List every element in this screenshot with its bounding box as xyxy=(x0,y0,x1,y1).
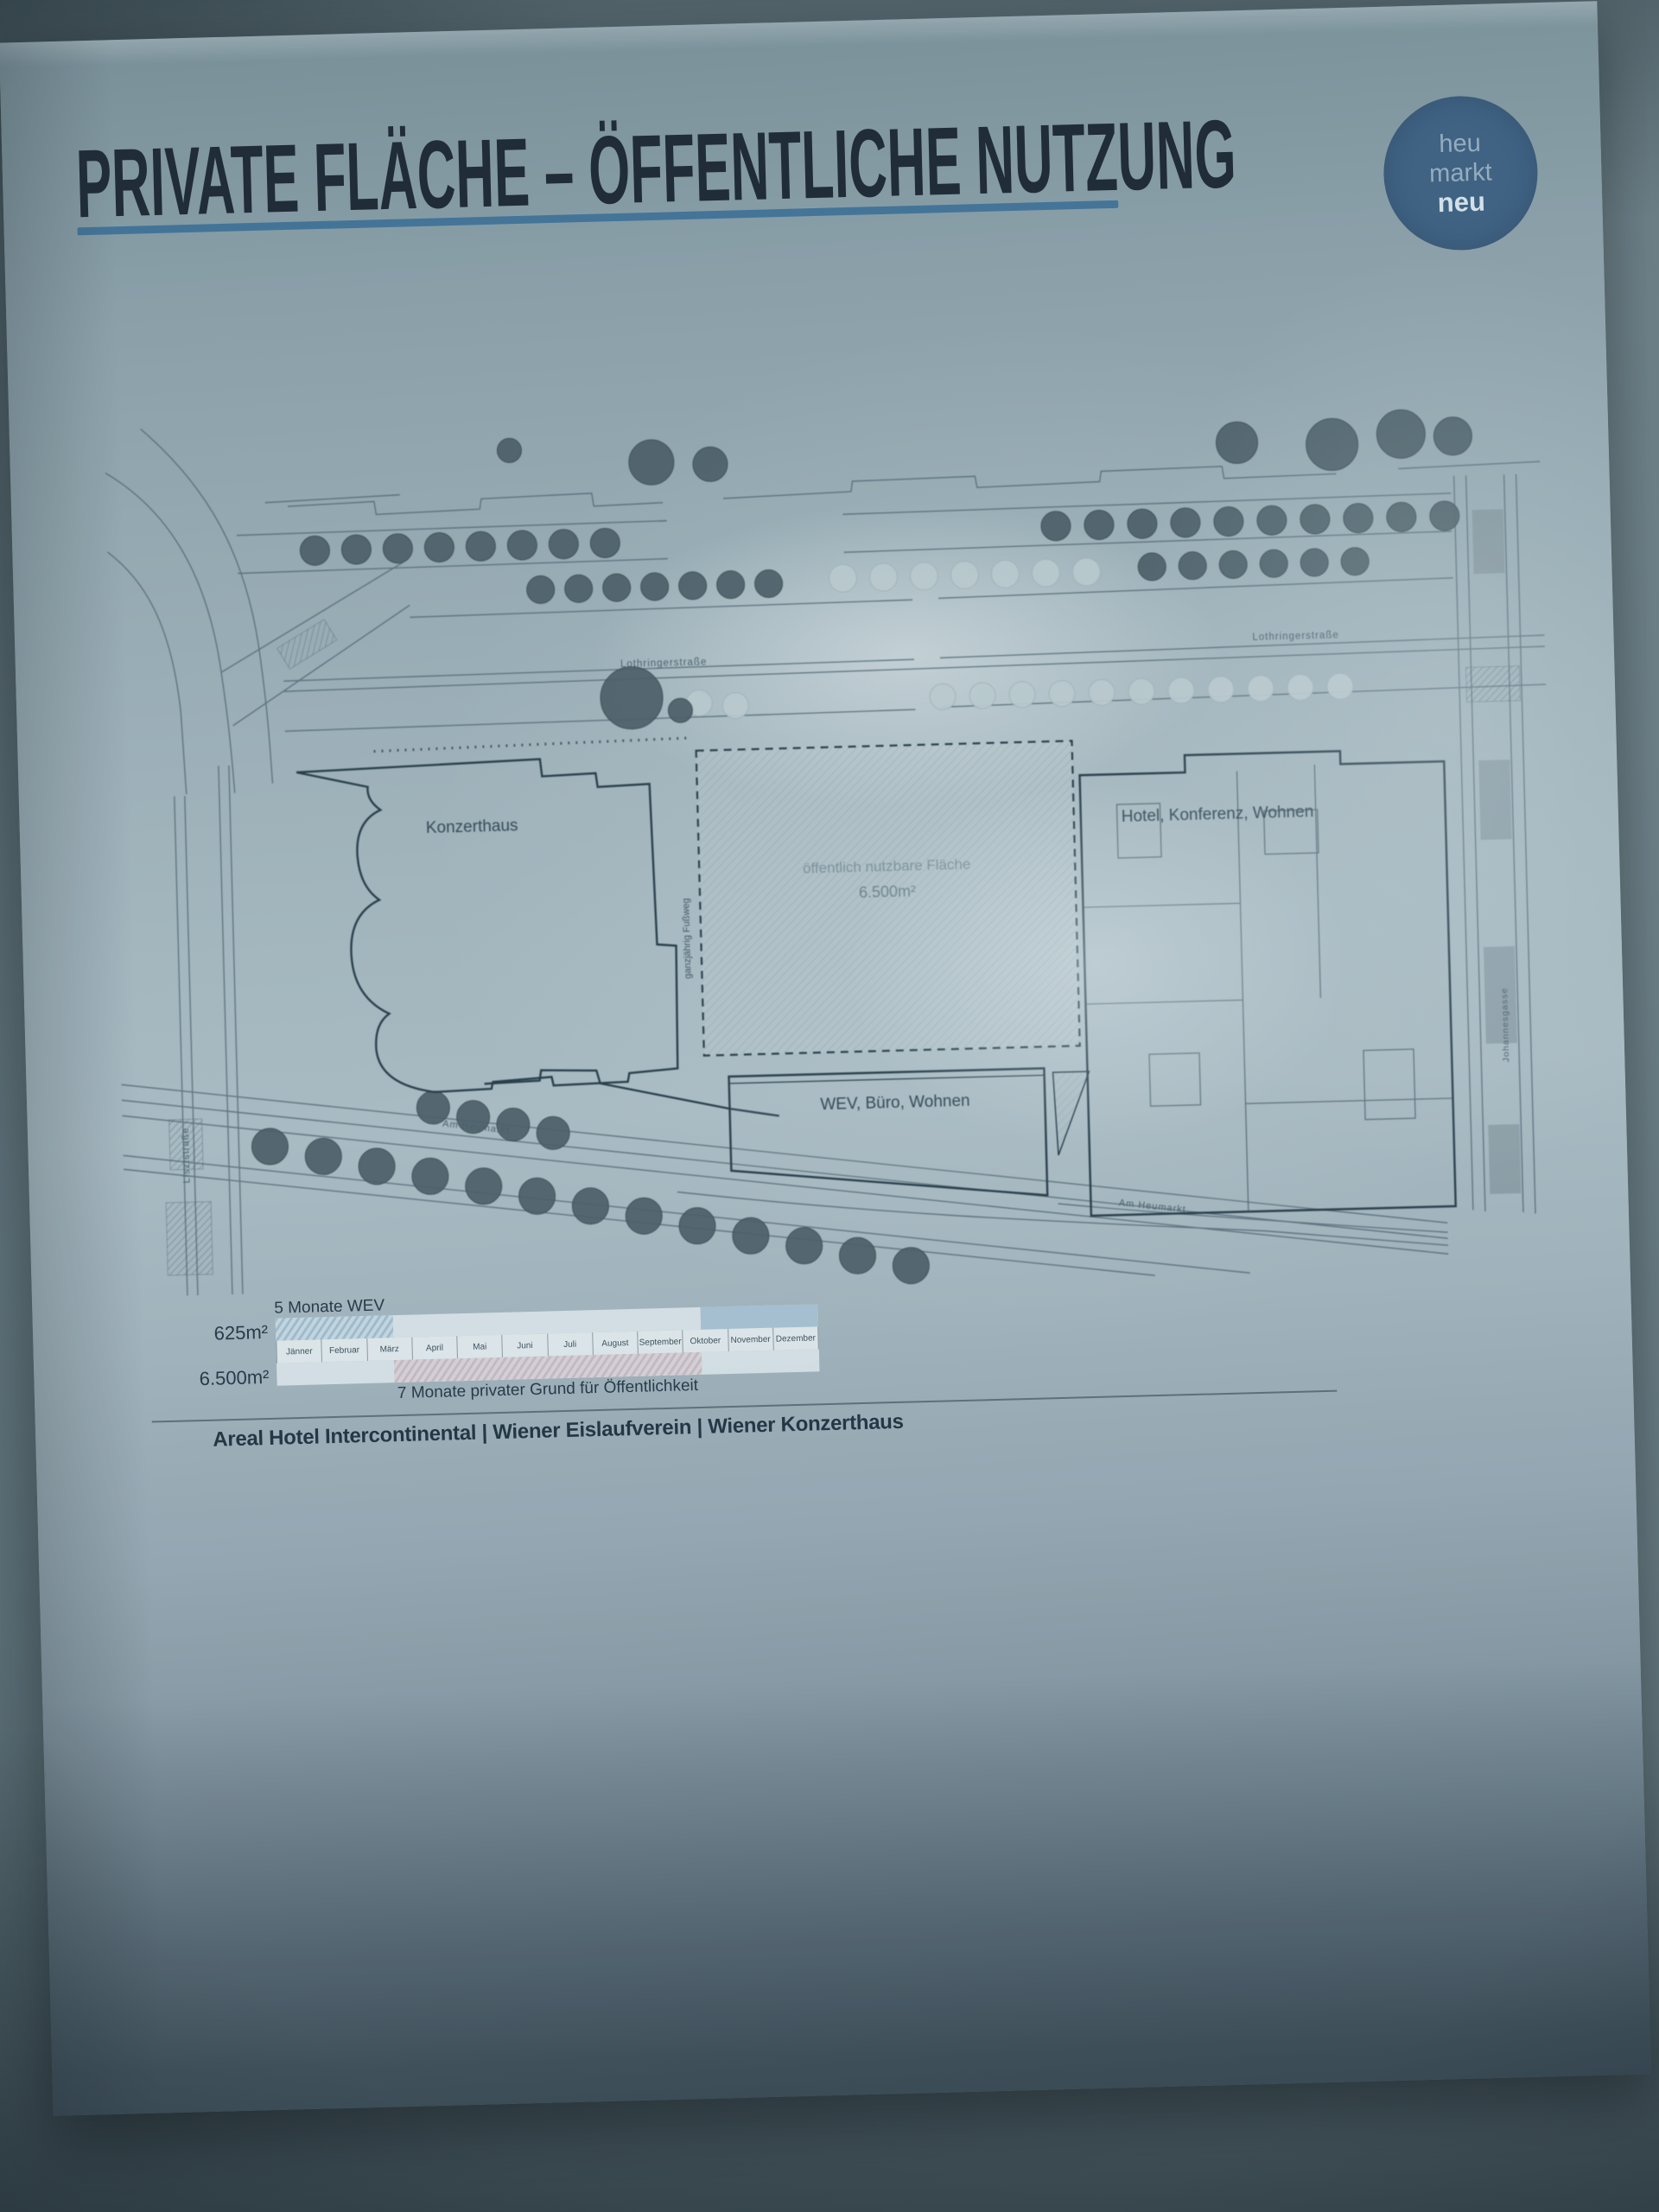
site-plan: Konzerthaus Hotel, Konferenz, Wohnen WEV… xyxy=(105,387,1562,1323)
tree-icon xyxy=(1009,681,1036,708)
tree-icon xyxy=(537,1116,570,1150)
tree-icon xyxy=(1256,505,1287,536)
tree-icon xyxy=(1327,673,1354,700)
tree-icon xyxy=(1341,547,1370,575)
month-label: Oktober xyxy=(682,1329,728,1352)
poster-sheet: PRIVATE FLÄCHE – ÖFFENTLICHE NUTZUNG heu… xyxy=(0,1,1651,2116)
tree-icon xyxy=(1049,680,1076,707)
wev-building-footprint xyxy=(729,1068,1048,1204)
ramp-hatch-triangle xyxy=(1053,1071,1091,1155)
tree-icon xyxy=(1179,551,1207,580)
tree-icon xyxy=(692,447,728,482)
tree-icon xyxy=(305,1138,342,1175)
month-label: Juni xyxy=(501,1334,547,1357)
tree-icon xyxy=(785,1227,823,1264)
tree-icon xyxy=(754,569,783,598)
month-label: August xyxy=(592,1332,638,1355)
month-label: November xyxy=(728,1328,773,1351)
tree-icon xyxy=(1216,422,1258,464)
tree-icon xyxy=(1168,677,1195,704)
tree-icon xyxy=(1127,509,1157,539)
tree-icon xyxy=(829,564,857,593)
tree-icon xyxy=(1300,505,1330,535)
street-label-lothringer-east: Lothringerstraße xyxy=(1252,630,1339,643)
tree-icon xyxy=(1084,510,1115,540)
tree-icon xyxy=(572,1187,609,1224)
tree-icon xyxy=(1429,501,1459,531)
tree-icon xyxy=(678,571,707,600)
tree-icon xyxy=(602,574,631,602)
tree-icon xyxy=(411,1158,448,1195)
tree-icon xyxy=(640,573,669,601)
footpath-label: ganzjährig Fußweg xyxy=(681,898,693,979)
area-label-6500: 6.500m² xyxy=(129,1366,270,1392)
street-label-liszt: Lisztstraße xyxy=(181,1127,193,1183)
tree-icon xyxy=(1032,559,1060,588)
tree-icon xyxy=(590,528,620,558)
tree-icon xyxy=(1248,675,1274,702)
tree-icon xyxy=(526,575,555,604)
tree-icon xyxy=(1343,503,1373,533)
logo-line-heu: heu xyxy=(1439,129,1481,159)
tree-icon xyxy=(626,1198,663,1235)
wev-usage-segment-1 xyxy=(700,1304,818,1330)
street-label-johannesgasse: Johannesgasse xyxy=(1499,988,1511,1063)
tree-icon xyxy=(869,563,898,592)
tree-icon xyxy=(1287,674,1314,701)
tree-icon xyxy=(383,533,413,563)
heumarkt-neu-logo-badge: heu markt neu xyxy=(1382,94,1540,252)
month-label: Februar xyxy=(321,1338,367,1362)
tree-icon xyxy=(969,683,996,709)
tree-icon xyxy=(893,1247,930,1284)
logo-line-neu: neu xyxy=(1437,188,1485,218)
konzerthaus-label: Konzerthaus xyxy=(426,817,518,837)
tree-icon xyxy=(1072,557,1101,586)
tree-icon xyxy=(1128,678,1155,705)
month-label: Dezember xyxy=(772,1326,819,1350)
tree-icon xyxy=(839,1237,876,1274)
tree-icon xyxy=(1260,550,1288,578)
tree-icon xyxy=(424,532,454,563)
month-label: März xyxy=(366,1338,412,1361)
tree-icon xyxy=(1433,416,1472,455)
tree-icon xyxy=(465,1167,502,1205)
tree-icon xyxy=(497,438,522,463)
month-label: Jänner xyxy=(276,1339,321,1363)
tree-icon xyxy=(359,1147,396,1185)
month-label: Juli xyxy=(547,1332,593,1356)
tree-icon xyxy=(1213,506,1243,537)
tree-icon xyxy=(1300,549,1329,577)
tree-icon xyxy=(628,439,674,485)
open-area-label-line2: 6.500m² xyxy=(859,882,917,901)
tree-icon xyxy=(564,575,593,603)
tree-icon xyxy=(518,1178,556,1215)
wev-usage-segment-0 xyxy=(276,1315,394,1341)
konzerthaus-footprint xyxy=(296,756,680,1096)
tree-icon xyxy=(732,1217,769,1255)
tree-icon xyxy=(668,698,693,723)
street-label-lothringer-west: Lothringerstraße xyxy=(620,657,708,670)
logo-line-markt: markt xyxy=(1429,157,1492,188)
tree-icon xyxy=(341,535,372,565)
tree-icon xyxy=(1170,507,1200,537)
tree-icon xyxy=(991,560,1020,588)
tree-icon xyxy=(1376,410,1426,459)
month-label: September xyxy=(637,1330,683,1353)
tree-icon xyxy=(1041,511,1071,541)
tree-icon xyxy=(549,529,579,559)
tree-icon xyxy=(950,561,979,589)
month-label: April xyxy=(411,1336,457,1359)
tree-icon xyxy=(507,531,537,561)
tree-icon xyxy=(466,531,496,562)
tree-icon xyxy=(716,570,745,599)
tree-icon xyxy=(1386,502,1416,532)
tree-icon xyxy=(722,692,749,719)
tree-icon xyxy=(1219,550,1248,579)
tree-icon xyxy=(251,1128,289,1165)
tree-icon xyxy=(1138,552,1166,581)
tree-icon xyxy=(1089,679,1116,706)
tree-icon xyxy=(1208,676,1235,702)
tree-icon xyxy=(910,562,938,590)
site-boundary-dotted xyxy=(373,738,690,752)
area-label-625: 625m² xyxy=(137,1321,269,1347)
tree-icon xyxy=(930,683,957,710)
tree-icon xyxy=(678,1207,715,1244)
month-label: Mai xyxy=(456,1335,502,1358)
tree-icon xyxy=(300,536,330,566)
tree-icon xyxy=(1306,418,1359,472)
